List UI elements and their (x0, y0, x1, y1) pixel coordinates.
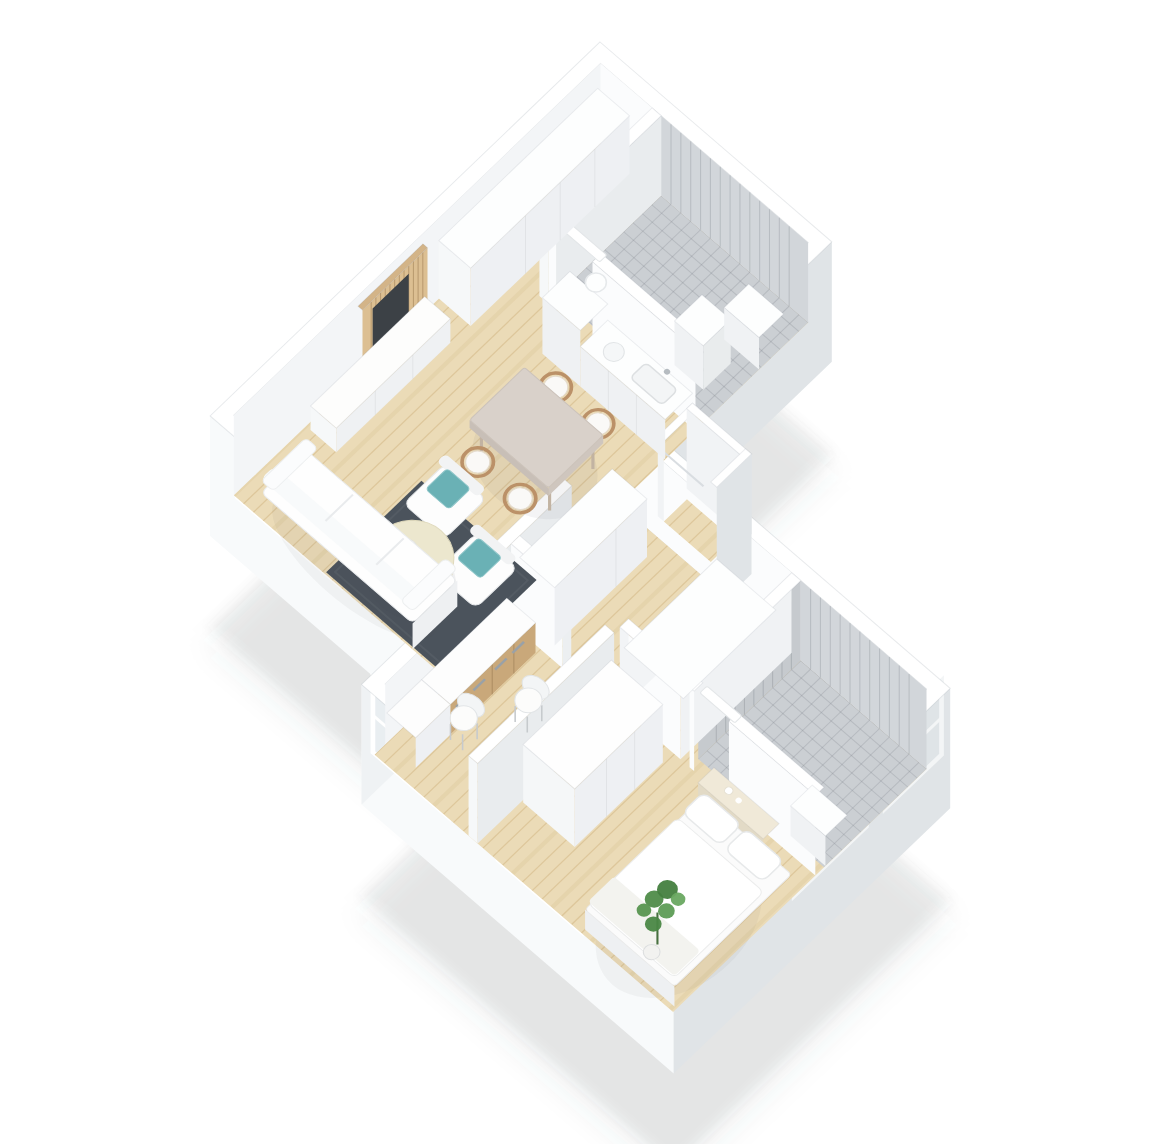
isometric-world (8, 42, 1170, 1144)
floor-plan-stage (0, 0, 1170, 1144)
floor-plan-render (0, 0, 1170, 1144)
